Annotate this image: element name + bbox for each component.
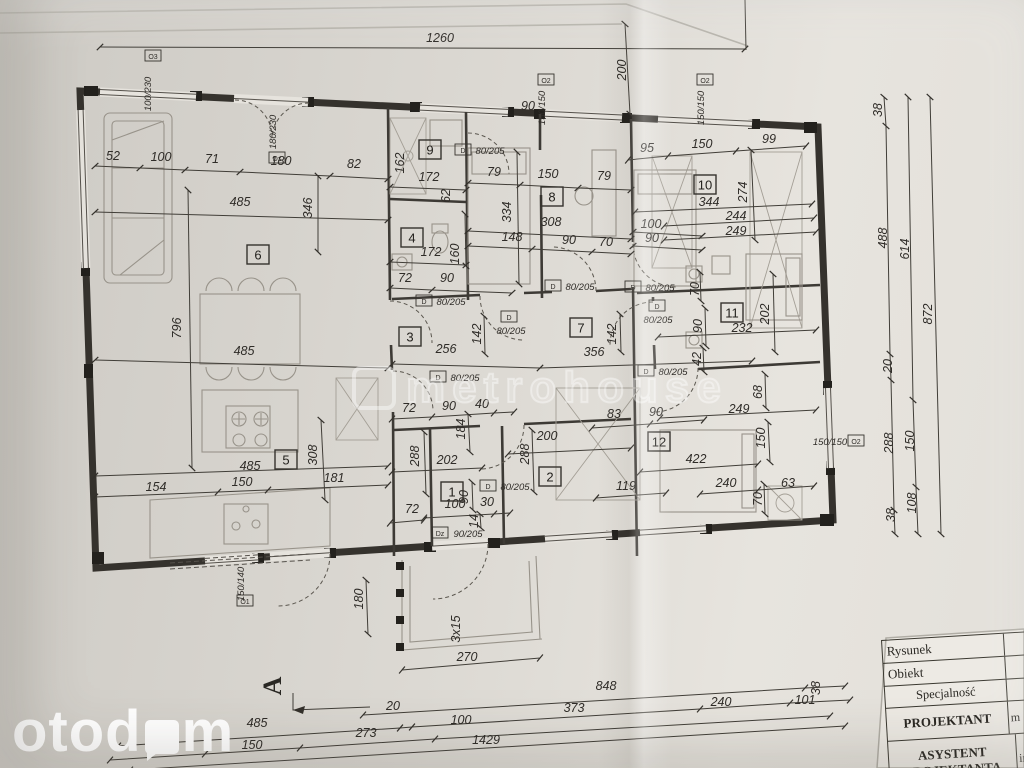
title-block-value: m bbox=[1007, 700, 1024, 734]
dimension-label: 1260 bbox=[426, 31, 454, 45]
dimension-label: 79 bbox=[487, 165, 501, 179]
dimension-label: 485 bbox=[240, 459, 261, 473]
paper-edges bbox=[0, 4, 1024, 768]
plant-room12 bbox=[768, 486, 802, 520]
dimension-label: 38 bbox=[884, 508, 898, 522]
dimension-label: 288 bbox=[882, 433, 896, 455]
opening-size-label: 150/150 bbox=[813, 437, 848, 448]
dimension-label: 848 bbox=[596, 679, 617, 693]
opening-size-label: 80/205 bbox=[565, 282, 595, 293]
dimension-label: 42 bbox=[690, 352, 704, 366]
dimension-label: 288 bbox=[518, 444, 532, 466]
title-block-value bbox=[1003, 632, 1024, 656]
dimension-label: 20 bbox=[385, 699, 400, 713]
dimension-label: 344 bbox=[699, 195, 720, 209]
dimension-label: 422 bbox=[686, 452, 707, 466]
dimension-label: 249 bbox=[728, 402, 750, 416]
dimension-label: 90 bbox=[521, 99, 535, 113]
dimension-label: 270 bbox=[456, 650, 478, 664]
opening-size-label: 150/140 bbox=[236, 566, 247, 601]
opening-size-label: 80/205 bbox=[643, 315, 673, 326]
dimension-label: 181 bbox=[324, 471, 345, 485]
room-number: 1 bbox=[448, 485, 455, 500]
dimension-label: 200 bbox=[536, 429, 558, 443]
dimension-label: 72 bbox=[402, 401, 416, 415]
bed-room12 bbox=[660, 430, 756, 512]
dimension-label: 70 bbox=[688, 282, 702, 296]
dimension-label: 172 bbox=[419, 170, 440, 184]
dimension-label: 249 bbox=[725, 224, 747, 238]
dimension-label: 30 bbox=[480, 495, 494, 509]
dimension-label: 79 bbox=[597, 169, 611, 183]
dimension-label: 100 bbox=[151, 150, 172, 164]
dimension-label: 90 bbox=[440, 271, 454, 285]
section-marker-arrow bbox=[293, 693, 370, 714]
washer-room11 bbox=[686, 332, 702, 348]
section-label: A bbox=[258, 676, 287, 695]
dimension-label: 485 bbox=[234, 344, 255, 358]
opening-tag: D bbox=[550, 284, 555, 291]
dimension-label: 614 bbox=[898, 239, 912, 260]
dimension-label: 162 bbox=[393, 153, 407, 174]
room-number: 5 bbox=[282, 453, 289, 468]
opening-size-label: 80/205 bbox=[645, 283, 675, 294]
dimension-label: 62 bbox=[439, 189, 453, 203]
opening-tag: O2 bbox=[541, 78, 550, 85]
dimension-label: 150 bbox=[692, 137, 713, 151]
dimension-label: 288 bbox=[408, 446, 422, 468]
opening-tag: Dz bbox=[273, 156, 282, 163]
opening-size-label: 150/150 bbox=[696, 90, 707, 125]
dimension-label: 202 bbox=[758, 304, 772, 326]
dimension-label: 172 bbox=[421, 245, 442, 259]
opening-tag: D bbox=[460, 148, 465, 155]
dimension-label: 334 bbox=[500, 202, 514, 223]
floor-plan-drawing: 1260200521007118082791507995150994853467… bbox=[0, 0, 1024, 768]
dimension-label: 3x15 bbox=[449, 615, 463, 642]
dimension-label: 200 bbox=[615, 60, 629, 82]
opening-tag: O3 bbox=[148, 54, 157, 61]
opening-size-label: 180/230 bbox=[268, 114, 279, 149]
sofa bbox=[104, 113, 172, 283]
opening-tag: D bbox=[435, 375, 440, 382]
title-block: Rysunek Obiekt Specjalność PROJEKTANT m … bbox=[881, 631, 1024, 768]
room-number: 10 bbox=[698, 178, 712, 193]
dimension-label: 90 bbox=[562, 233, 576, 247]
opening-size-label: 80/205 bbox=[496, 326, 526, 337]
dimension-label: 872 bbox=[921, 304, 935, 325]
opening-size-label: 80/205 bbox=[436, 297, 466, 308]
desk-room8 bbox=[575, 150, 616, 236]
opening-tag: D bbox=[654, 304, 659, 311]
dimension-label: 184 bbox=[454, 419, 468, 440]
dimension-label: 373 bbox=[564, 701, 585, 715]
dimension-label: 70 bbox=[599, 235, 613, 249]
dimension-label: 308 bbox=[306, 445, 320, 466]
dimension-label: 256 bbox=[435, 342, 457, 356]
opening-tag: O2 bbox=[700, 78, 709, 85]
dimension-label: 488 bbox=[876, 228, 890, 249]
room-number: 7 bbox=[577, 321, 584, 336]
opening-size-label: 80/205 bbox=[658, 367, 688, 378]
opening-size-label: 90/205 bbox=[453, 529, 483, 540]
dimension-label: 72 bbox=[398, 271, 412, 285]
dimension-label: 150 bbox=[754, 428, 768, 449]
dimension-label: 150 bbox=[903, 431, 917, 452]
dimension-label: 485 bbox=[247, 716, 268, 730]
room-number: 12 bbox=[652, 435, 666, 450]
dimension-label: 82 bbox=[347, 157, 361, 171]
dimension-label: 1429 bbox=[472, 733, 500, 747]
dimension-label: 20 bbox=[881, 359, 895, 374]
dimension-label: 202 bbox=[436, 453, 458, 467]
dimension-label: 142 bbox=[605, 324, 619, 345]
dimension-label: 180 bbox=[352, 589, 366, 610]
kitchen-sink-counter bbox=[150, 488, 330, 558]
opening-size-label: 80/205 bbox=[500, 482, 530, 493]
opening-size-label: 100/230 bbox=[143, 76, 154, 111]
dimension-label: 240 bbox=[710, 695, 732, 709]
room-number: 9 bbox=[426, 143, 433, 158]
dimension-label: 38 bbox=[871, 103, 885, 117]
dimension-label: 108 bbox=[905, 493, 919, 514]
dimension-labels: 1260200521007118082791507995150994853467… bbox=[106, 31, 935, 757]
dimension-label: 356 bbox=[584, 345, 605, 359]
dimension-label: 150 bbox=[232, 475, 253, 489]
room-number: 2 bbox=[546, 470, 553, 485]
dimension-label: 99 bbox=[762, 132, 776, 146]
dimension-label: 72 bbox=[405, 502, 419, 516]
room-number: 11 bbox=[725, 306, 739, 321]
dimension-label: 160 bbox=[448, 244, 462, 265]
wardrobe-room10 bbox=[750, 152, 802, 328]
dimension-label: 14 bbox=[467, 514, 481, 528]
photographed-floor-plan: 1260200521007118082791507995150994853467… bbox=[0, 0, 1024, 768]
dimension-label: 232 bbox=[731, 321, 753, 335]
dimension-label: 142 bbox=[470, 324, 484, 345]
opening-size-label: 150/150 bbox=[537, 90, 548, 125]
dimension-label: 83 bbox=[607, 407, 621, 421]
dimension-label: 119 bbox=[616, 479, 636, 493]
cabinet bbox=[336, 378, 378, 440]
dimension-label: 95 bbox=[640, 141, 654, 155]
dimension-label: 90 bbox=[691, 319, 705, 333]
cabinet-room9 bbox=[430, 120, 462, 146]
opening-tag: D bbox=[643, 369, 648, 376]
opening-tag: D bbox=[506, 315, 511, 322]
dimension-label: 40 bbox=[475, 397, 489, 411]
dimension-label: 100 bbox=[641, 217, 662, 231]
kitchen-island-stove bbox=[202, 390, 298, 452]
opening-size-label: 80/205 bbox=[450, 373, 480, 384]
dimension-label: 240 bbox=[715, 476, 737, 490]
dimension-label: 90 bbox=[645, 231, 659, 245]
dimension-label: 485 bbox=[230, 195, 251, 209]
wardrobe-room8 bbox=[652, 156, 692, 268]
title-block-value bbox=[1004, 655, 1024, 679]
dimension-label: 150 bbox=[242, 738, 263, 752]
room-number: 3 bbox=[406, 330, 413, 345]
dimension-label: 71 bbox=[205, 152, 219, 166]
opening-tag: D bbox=[421, 299, 426, 306]
room-number: 6 bbox=[254, 248, 261, 263]
dimension-label: 68 bbox=[751, 385, 765, 399]
dimension-label: 273 bbox=[355, 726, 377, 740]
room-number: 8 bbox=[548, 190, 555, 205]
dimension-label: 100 bbox=[451, 713, 472, 727]
title-block-value: in bbox=[1015, 733, 1024, 768]
opening-tag: D bbox=[485, 484, 490, 491]
opening-size-label: 80/205 bbox=[475, 146, 505, 157]
dimension-label: 244 bbox=[725, 209, 747, 223]
opening-tag: O2 bbox=[851, 439, 860, 446]
dimension-label: 63 bbox=[781, 476, 795, 490]
room-number: 4 bbox=[408, 231, 415, 246]
dimension-label: 346 bbox=[301, 198, 315, 219]
opening-tag: D bbox=[630, 285, 635, 292]
opening-tag: Dz bbox=[436, 531, 445, 538]
dimension-label: 154 bbox=[146, 480, 167, 494]
dimension-label: 308 bbox=[541, 215, 562, 229]
title-block-value bbox=[1006, 678, 1024, 701]
dimension-label: 192 bbox=[147, 743, 168, 757]
dimension-label: 148 bbox=[502, 230, 523, 244]
dimension-label: 90 bbox=[442, 399, 456, 413]
dimension-label: 52 bbox=[106, 149, 120, 163]
dimension-label: 38 bbox=[809, 681, 823, 695]
section-marker-letter: A bbox=[258, 676, 287, 695]
dimension-label: 150 bbox=[538, 167, 559, 181]
dimension-label: 796 bbox=[170, 318, 184, 339]
dimension-label: 90 bbox=[649, 405, 663, 419]
dimension-label: 70 bbox=[751, 492, 765, 506]
dimension-label: 274 bbox=[736, 182, 750, 204]
